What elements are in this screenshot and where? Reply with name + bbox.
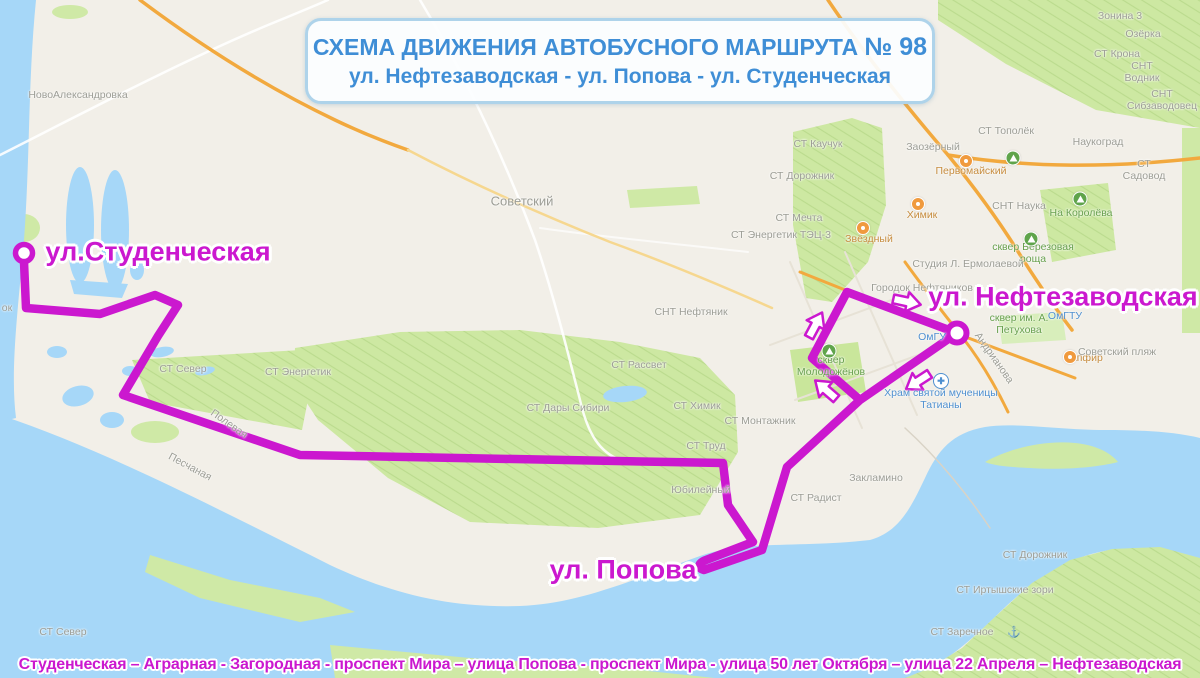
title-box: СХЕМА ДВИЖЕНИЯ АВТОБУСНОГО МАРШРУТА № 98… bbox=[305, 18, 935, 104]
route-number: № 98 bbox=[864, 33, 927, 61]
title-line2: ул. Нефтезаводская - ул. Попова - ул. Ст… bbox=[349, 65, 891, 89]
route-start-marker bbox=[16, 245, 33, 262]
route-end-marker bbox=[948, 324, 967, 343]
bus-route-scheme: НовоАлександровкаСоветскийСТ КаучукСТ До… bbox=[0, 0, 1200, 678]
title-line1: СХЕМА ДВИЖЕНИЯ АВТОБУСНОГО МАРШРУТА № 98 bbox=[313, 33, 927, 62]
title-prefix: СХЕМА ДВИЖЕНИЯ АВТОБУСНОГО МАРШРУТА bbox=[313, 34, 865, 60]
route-stop-label: ул. Попова bbox=[550, 555, 697, 586]
streets-sequence-line: Студенческая – Аграрная - Загородная - п… bbox=[0, 656, 1200, 674]
route-stop-label: ул.Студенческая bbox=[45, 237, 270, 268]
route-stop-label: ул. Нефтезаводская bbox=[928, 282, 1197, 313]
